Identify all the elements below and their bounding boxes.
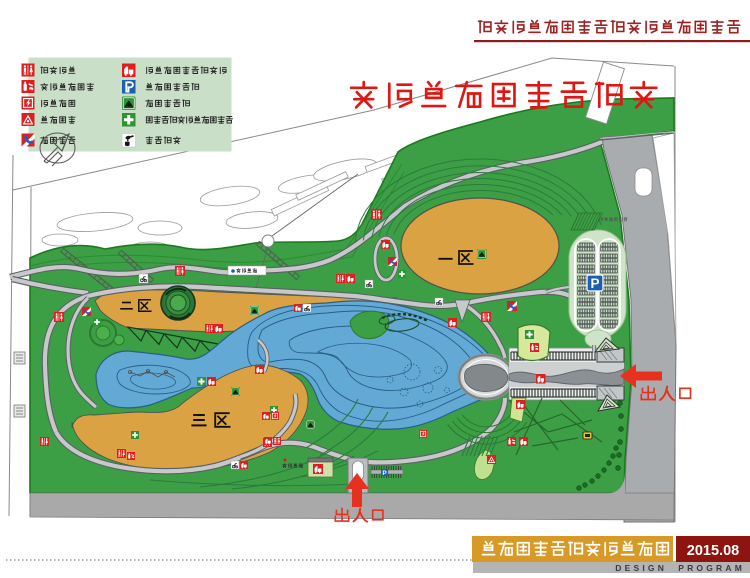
svg-text:P: P xyxy=(382,470,387,477)
svg-text:2015.08: 2015.08 xyxy=(687,543,739,559)
svg-text:P: P xyxy=(590,276,599,291)
svg-text:DESIGN PROGRAM: DESIGN PROGRAM xyxy=(615,563,745,573)
